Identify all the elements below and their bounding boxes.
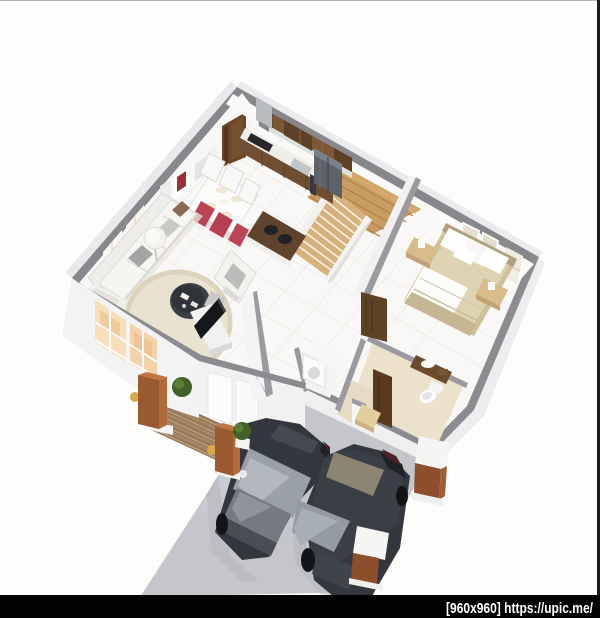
svg-text:[960x960] https://upic.me/: [960x960] https://upic.me/ — [446, 600, 594, 617]
